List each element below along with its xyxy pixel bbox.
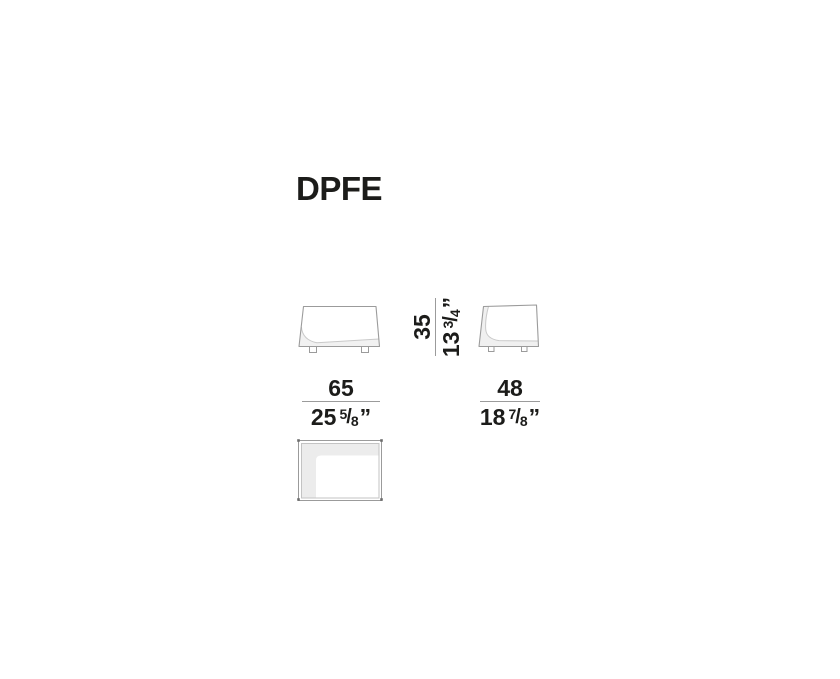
side-view-drawing bbox=[479, 305, 539, 352]
width-inch-mark: ” bbox=[360, 404, 372, 430]
depth-inch-whole: 18 bbox=[480, 404, 506, 430]
depth-frac-denominator: 8 bbox=[520, 413, 528, 429]
height-frac-denominator: 4 bbox=[447, 309, 463, 317]
depth-inch-value: 187/8” bbox=[450, 405, 570, 432]
height-inch-mark: ” bbox=[438, 297, 464, 309]
width-frac-denominator: 8 bbox=[351, 413, 359, 429]
front-view-left-foot bbox=[310, 347, 317, 353]
front-view-right-foot bbox=[362, 347, 369, 353]
top-view-corner-mark-tr bbox=[380, 439, 383, 442]
height-dimension: 35 133/4” bbox=[408, 295, 468, 359]
side-view-left-foot bbox=[489, 347, 495, 352]
height-frac-slash: / bbox=[440, 316, 462, 322]
side-view-right-foot bbox=[522, 347, 528, 352]
width-cm-value: 65 bbox=[281, 377, 401, 399]
depth-inch-mark: ” bbox=[529, 404, 541, 430]
height-inch-whole: 13 bbox=[438, 332, 464, 358]
depth-dimension: 48 187/8” bbox=[450, 377, 570, 432]
width-dimension: 65 255/8” bbox=[281, 377, 401, 432]
height-cm-value: 35 bbox=[411, 295, 433, 359]
top-view-seat-area bbox=[316, 456, 379, 498]
width-fraction-bar bbox=[302, 401, 380, 402]
height-inch-value: 133/4” bbox=[439, 295, 466, 359]
top-view-drawing bbox=[297, 439, 383, 501]
width-inch-whole: 25 bbox=[311, 404, 337, 430]
width-inch-value: 255/8” bbox=[281, 405, 401, 432]
height-fraction-bar bbox=[435, 298, 436, 356]
depth-cm-value: 48 bbox=[450, 377, 570, 399]
front-view-drawing bbox=[299, 307, 380, 353]
top-view-corner-mark-bl bbox=[297, 498, 300, 501]
top-view-corner-mark-br bbox=[380, 498, 383, 501]
top-view-corner-mark-tl bbox=[297, 439, 300, 442]
spec-sheet: DPFE bbox=[0, 0, 840, 679]
depth-fraction-bar bbox=[480, 401, 540, 402]
